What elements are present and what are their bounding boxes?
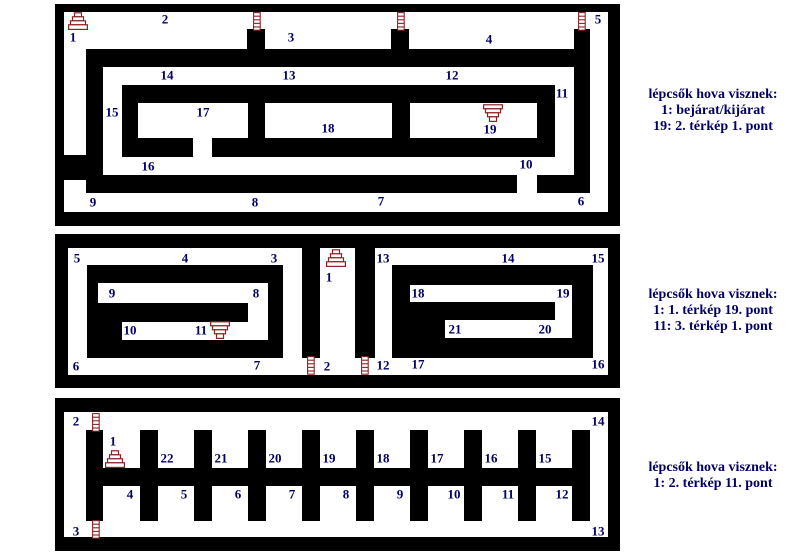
point-label: 14 — [502, 252, 515, 265]
point-label: 6 — [235, 488, 242, 501]
maze-wall — [140, 430, 158, 468]
point-label: 19 — [557, 287, 570, 300]
point-label: 2 — [73, 415, 80, 428]
legend-line: lépcsők hova visznek: — [618, 87, 800, 103]
ladder-icon — [578, 12, 586, 36]
point-label: 1 — [70, 31, 77, 44]
point-label: 9 — [90, 196, 97, 209]
point-label: 14 — [592, 415, 605, 428]
point-label: 12 — [377, 359, 390, 372]
maze-wall — [212, 138, 555, 157]
maze-wall — [122, 138, 193, 157]
maze-wall — [55, 375, 620, 388]
legend-line: lépcsők hova visznek: — [618, 460, 800, 476]
legend-line: 11: 3. térkép 1. pont — [618, 319, 800, 335]
maze-wall — [392, 265, 593, 285]
maze-wall — [140, 486, 158, 521]
ladder-icon — [92, 413, 100, 437]
legend-line: 1: bejárat/kijárat — [618, 103, 800, 119]
maze-wall — [574, 29, 590, 193]
point-label: 4 — [486, 33, 493, 46]
maze-wall — [247, 29, 265, 49]
maze-wall — [248, 430, 266, 468]
maze-wall — [356, 486, 374, 521]
maze-wall — [302, 486, 320, 521]
point-label: 13 — [283, 69, 296, 82]
legend-note: lépcsők hova visznek:1: 1. térkép 19. po… — [618, 287, 800, 335]
point-label: 13 — [592, 525, 605, 538]
maze-wall — [302, 430, 320, 468]
point-label: 9 — [109, 287, 116, 300]
point-label: 6 — [73, 360, 80, 373]
point-label: 3 — [73, 525, 80, 538]
point-label: 16 — [485, 452, 498, 465]
maze-wall — [55, 234, 620, 248]
maze-wall — [55, 4, 64, 226]
maze-wall — [518, 430, 536, 468]
ladder-icon — [307, 356, 315, 380]
maze-wall — [464, 430, 482, 468]
maze-wall — [87, 265, 283, 283]
point-label: 1 — [326, 271, 333, 284]
stairs-up-icon — [326, 249, 346, 273]
point-label: 12 — [556, 488, 569, 501]
point-label: 20 — [539, 323, 552, 336]
maze-wall — [572, 430, 590, 468]
stairs-up-icon — [105, 450, 125, 474]
point-label: 17 — [412, 358, 425, 371]
maze-wall — [86, 430, 103, 521]
point-label: 8 — [253, 287, 260, 300]
stairs-up-icon — [68, 12, 88, 36]
point-label: 7 — [289, 488, 296, 501]
maze-wall — [392, 338, 593, 358]
maze-wall — [55, 212, 620, 226]
maze-wall — [55, 234, 68, 388]
ladder-icon — [92, 520, 100, 544]
point-label: 14 — [161, 69, 174, 82]
maze-wall — [194, 486, 212, 521]
maze-wall — [268, 283, 283, 358]
maze-wall — [86, 49, 590, 67]
point-label: 11 — [556, 87, 568, 100]
point-label: 5 — [181, 488, 188, 501]
point-label: 8 — [252, 196, 259, 209]
point-label: 15 — [592, 252, 605, 265]
stairs-down-icon — [210, 321, 230, 345]
maze-wall — [55, 398, 620, 412]
point-label: 10 — [124, 324, 137, 337]
maze-wall — [86, 175, 517, 193]
point-label: 16 — [142, 160, 155, 173]
maze-wall — [410, 302, 555, 320]
maze-wall — [464, 486, 482, 521]
point-label: 17 — [431, 452, 444, 465]
point-label: 10 — [520, 158, 533, 171]
maze-wall — [248, 103, 265, 138]
point-label: 7 — [254, 359, 261, 372]
point-label: 19 — [323, 452, 336, 465]
point-label: 9 — [397, 488, 404, 501]
maze-wall — [122, 85, 555, 103]
ladder-icon — [397, 12, 405, 36]
legend-line: 1: 1. térkép 19. pont — [618, 303, 800, 319]
point-label: 20 — [269, 452, 282, 465]
maze-wall — [355, 248, 375, 358]
maze-wall — [410, 486, 428, 521]
point-label: 8 — [343, 488, 350, 501]
maze-wall — [87, 283, 98, 358]
legend-line: 19: 2. térkép 1. pont — [618, 119, 800, 135]
point-label: 18 — [322, 122, 335, 135]
maze-wall — [98, 303, 248, 322]
maze-wall — [392, 285, 410, 358]
point-label: 15 — [539, 452, 552, 465]
maze-wall — [572, 285, 593, 358]
point-label: 1 — [110, 435, 117, 448]
maze-wall — [87, 340, 283, 358]
maze-wall — [55, 155, 86, 180]
point-label: 18 — [412, 287, 425, 300]
maze-wall — [537, 85, 555, 157]
point-label: 18 — [377, 452, 390, 465]
maze-wall — [194, 430, 212, 468]
point-label: 11 — [502, 488, 514, 501]
point-label: 11 — [195, 324, 207, 337]
maze-wall — [86, 49, 103, 193]
point-label: 3 — [271, 252, 278, 265]
point-label: 5 — [595, 13, 602, 26]
point-label: 7 — [378, 195, 385, 208]
maze-wall — [55, 537, 620, 551]
legend-line: lépcsők hova visznek: — [618, 287, 800, 303]
maze-wall — [410, 320, 445, 338]
ladder-icon — [253, 12, 261, 36]
point-label: 22 — [161, 452, 174, 465]
legend-note: lépcsők hova visznek:1: bejárat/kijárat1… — [618, 87, 800, 135]
maze-wall — [391, 29, 409, 49]
maze-wall — [55, 4, 620, 12]
point-label: 2 — [162, 13, 169, 26]
maze-wall — [518, 486, 536, 521]
legend-note: lépcsők hova visznek:1: 2. térkép 11. po… — [618, 460, 800, 492]
point-label: 4 — [182, 252, 189, 265]
maze-wall — [410, 430, 428, 468]
point-label: 6 — [578, 195, 585, 208]
ladder-icon — [361, 356, 369, 380]
maze-wall — [98, 322, 122, 340]
point-label: 13 — [377, 252, 390, 265]
maze-wall — [537, 175, 590, 193]
point-label: 5 — [74, 252, 81, 265]
maze-wall — [86, 468, 590, 486]
maze-wall — [356, 430, 374, 468]
point-label: 21 — [449, 323, 462, 336]
point-label: 2 — [324, 360, 331, 373]
maze-wall — [55, 398, 64, 550]
point-label: 16 — [592, 358, 605, 371]
maze-wall — [572, 486, 590, 521]
point-label: 4 — [127, 488, 134, 501]
point-label: 19 — [484, 123, 497, 136]
point-label: 21 — [215, 452, 228, 465]
point-label: 15 — [106, 106, 119, 119]
point-label: 3 — [288, 31, 295, 44]
maze-wall — [392, 103, 410, 138]
point-label: 10 — [448, 488, 461, 501]
maze-wall — [248, 486, 266, 521]
maze-wall — [302, 248, 320, 358]
point-label: 12 — [446, 69, 459, 82]
point-label: 17 — [197, 106, 210, 119]
stairs-down-icon — [483, 104, 503, 128]
maze-wall — [122, 85, 138, 157]
dungeon-maps-page: 1234514131211151718191610987654311314159… — [0, 0, 800, 560]
legend-line: 1: 2. térkép 11. pont — [618, 476, 800, 492]
